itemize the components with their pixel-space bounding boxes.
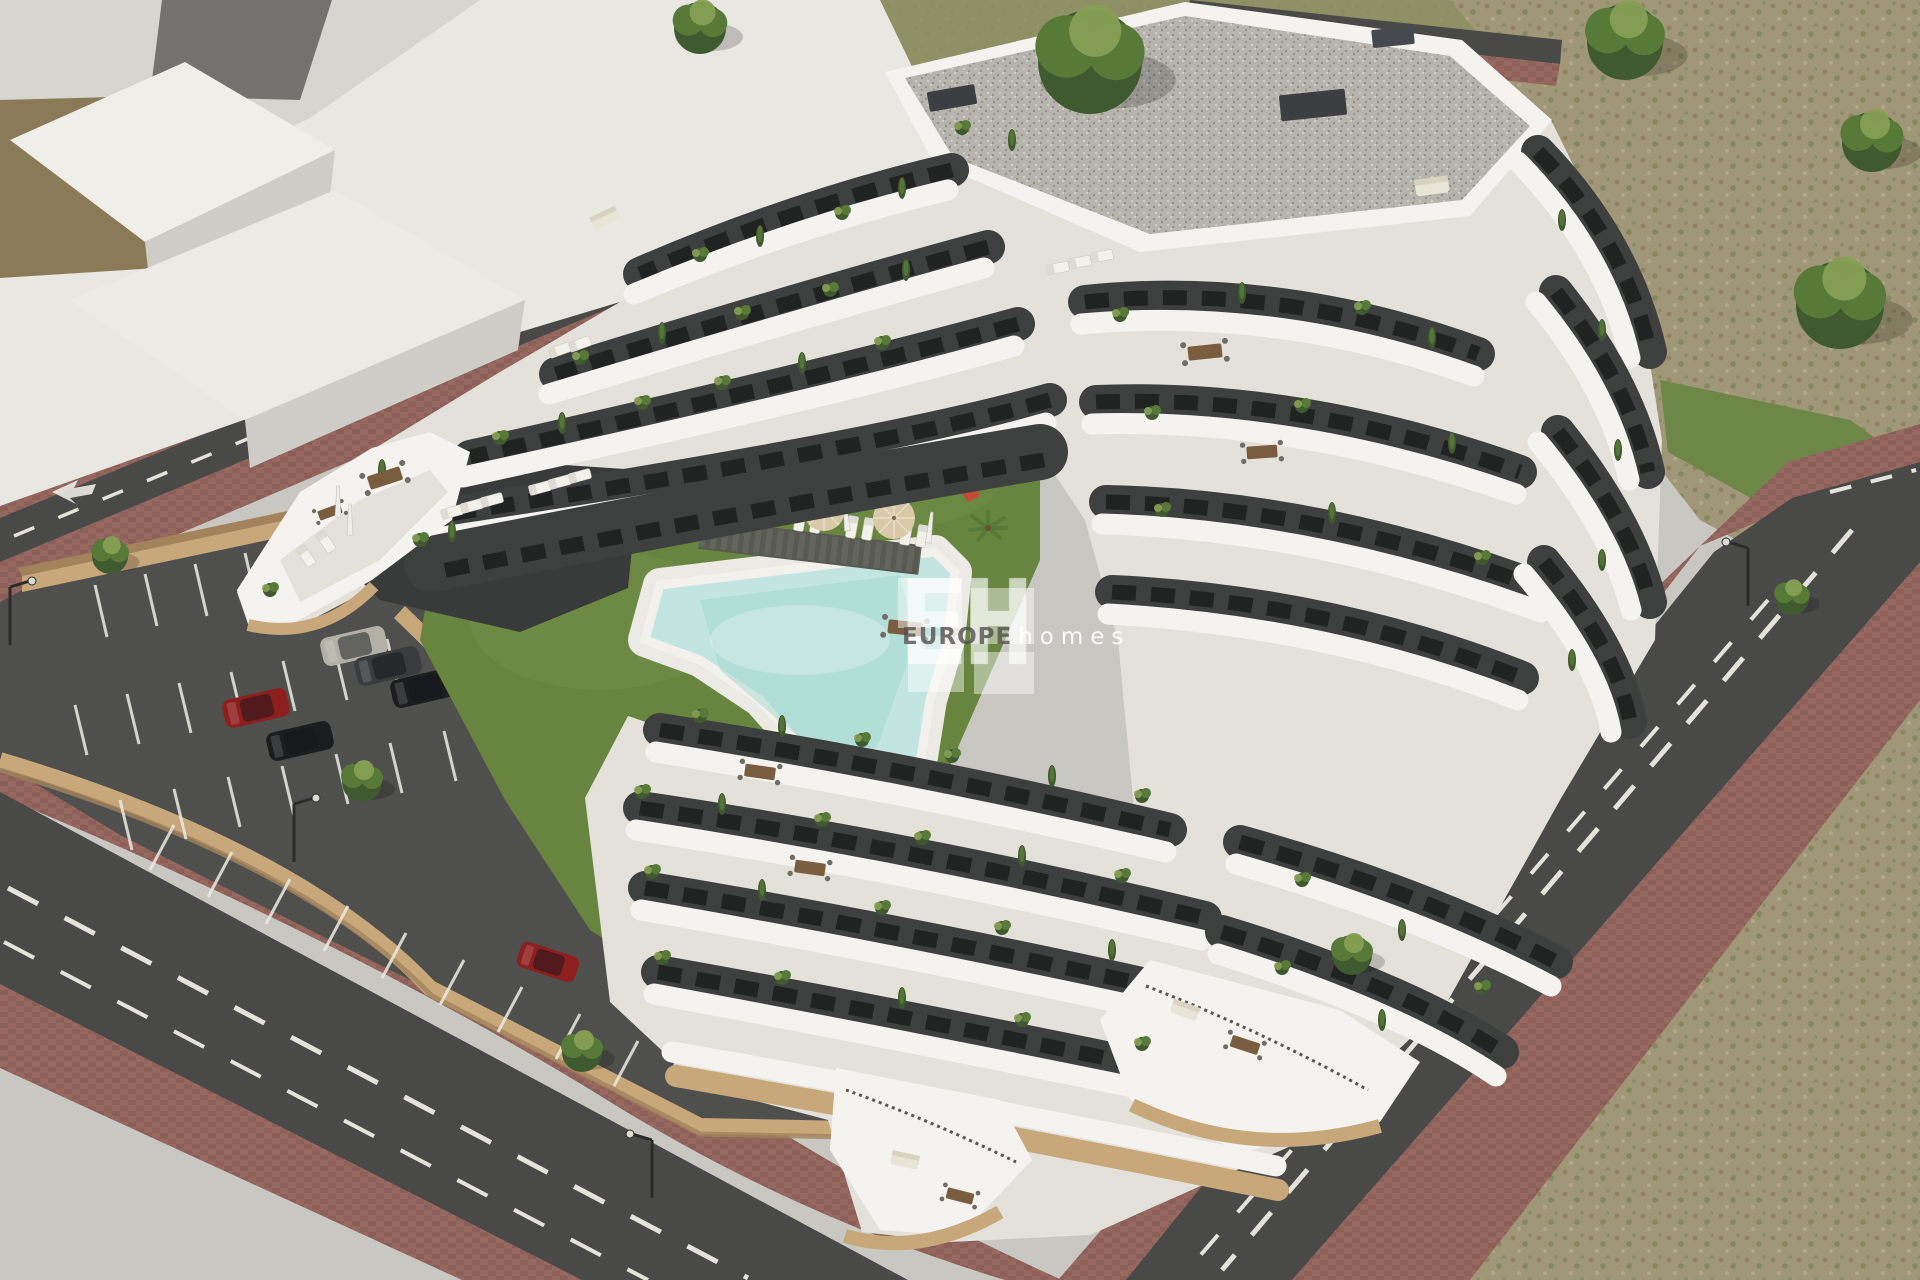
render-scene	[0, 0, 1920, 1280]
architectural-render: EH EUROPEhomes	[0, 0, 1920, 1280]
